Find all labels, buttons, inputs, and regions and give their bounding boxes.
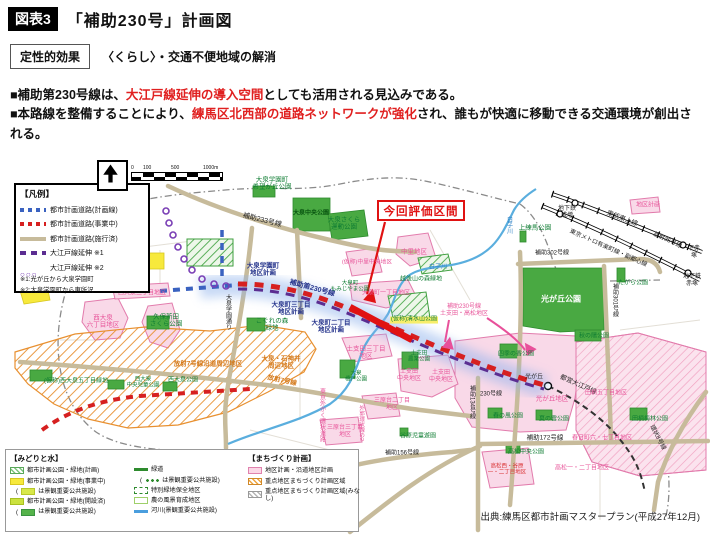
railways	[542, 194, 702, 280]
scale-tick: 0	[131, 165, 134, 171]
scale-tick: 500	[171, 165, 179, 171]
figure-page: 図表3 「補助230号」計画図 定性的効果 〈くらし〉・交通不便地域の解消 ■補…	[0, 0, 710, 536]
legend-paren: (	[140, 477, 142, 484]
legend-row: 大江戸線延伸 ※2	[20, 263, 144, 273]
sw-ygreen-swatch	[21, 488, 35, 495]
north-arrow-icon	[97, 160, 128, 191]
legend-paren: (	[16, 509, 18, 516]
scale-tick: 100	[143, 165, 151, 171]
bottom-legend-row: 重点地区まちづくり計画区域	[248, 478, 366, 485]
bottom-legend-row: 特別緑地保全地区	[134, 487, 242, 494]
green-water-legend-title: 【みどりと水】	[10, 453, 128, 464]
sw-lgreenbox-swatch	[134, 497, 148, 504]
bottom-legend-label: は景観重要公共施設)	[162, 477, 220, 484]
bottom-legend-row: (は景観重要公共施設)	[16, 508, 128, 515]
bottom-legend-label: は景観重要公共施設)	[38, 508, 96, 515]
evaluation-section-callout: 今回評価区間	[377, 200, 465, 221]
bottom-legend-label: 農の風景育成地区	[151, 497, 201, 504]
bottom-legend-label: 緑道	[151, 466, 163, 473]
sw-pink-swatch	[248, 467, 262, 474]
bottom-legend-label: 都市計画公園・緑地(開設済)	[27, 498, 105, 505]
bottom-legend-label: は景観重要公共施設)	[38, 488, 96, 495]
bottom-legend-label: 重点地区まちづくり計画区域	[265, 478, 345, 485]
tl-circles-swatch	[20, 264, 46, 272]
bottom-legend-row: 重点地区まちづくり計画区域(みなし)	[248, 488, 366, 502]
bottom-legend: 【みどりと水】 都市計画公園・緑地(計画)都市計画公園・緑地(事業中)(は景観重…	[5, 449, 359, 532]
bottom-legend-row: 都市計画公園・緑地(計画)	[10, 467, 128, 474]
priority-area-orange	[15, 325, 316, 428]
tl-blue-dash-swatch	[20, 208, 46, 212]
bottom-legend-label: 特別緑地保全地区	[151, 487, 201, 494]
map-legend: 【凡例】 都市計画道路(計画線)都市計画道路(事業中)都市計画道路(施行済)大江…	[14, 183, 150, 293]
machizukuri-legend-title: 【まちづくり計画】	[248, 453, 366, 464]
sw-dots-swatch	[145, 478, 159, 483]
bottom-legend-row: 緑道	[134, 466, 242, 473]
source-citation: 出典:練馬区都市計画マスタープラン(平成27年12月)	[480, 509, 700, 523]
sw-hatch-gray-swatch	[248, 491, 262, 498]
legend-row: 大江戸線延伸 ※1	[20, 248, 144, 258]
bottom-legend-label: 都市計画公園・緑地(計画)	[27, 467, 99, 474]
legend-row: 都市計画道路(計画線)	[20, 205, 144, 215]
legend-row: 都市計画道路(施行済)	[20, 234, 144, 244]
bottom-legend-row: 都市計画公園・緑地(開設済)	[10, 498, 128, 505]
tl-purple-dash-swatch	[20, 251, 46, 255]
legend-note: ※1:光が丘から大泉学園町	[20, 276, 144, 285]
sw-ygreen2-swatch	[10, 498, 24, 505]
sw-blueline-swatch	[134, 510, 148, 513]
bottom-legend-row: 都市計画公園・緑地(事業中)	[10, 478, 128, 485]
bottom-legend-label: 地区計画・沿道地区計画	[265, 467, 333, 474]
bottom-legend-label: 都市計画公園・緑地(事業中)	[27, 478, 105, 485]
legend-label: 都市計画道路(計画線)	[50, 205, 118, 215]
plan-map: 大泉学園町 希望が丘公園補助233号線大泉中央公園大泉さくら 運動公園上練馬公園…	[0, 0, 710, 536]
tl-red-dash-swatch	[20, 222, 46, 226]
bottom-legend-row: (は景観重要公共施設)	[16, 488, 128, 495]
legend-label: 都市計画道路(施行済)	[50, 234, 118, 244]
legend-row: 都市計画道路(事業中)	[20, 219, 144, 229]
sw-hatch-green-swatch	[10, 467, 24, 474]
sw-yellow-swatch	[10, 478, 24, 485]
bottom-legend-row: (は景観重要公共施設)	[140, 477, 242, 484]
legend-paren: (	[16, 488, 18, 495]
scale-bar: 01005001000m	[131, 165, 223, 181]
bottom-legend-row: 河川(景観重要公共施設)	[134, 507, 242, 514]
tl-tan-swatch	[20, 237, 46, 241]
sw-greendash-swatch	[134, 487, 148, 494]
sw-hatch-orange-swatch	[248, 478, 262, 485]
legend-note: ※2:大泉学園町から東所沢	[20, 287, 144, 296]
sw-greenline-swatch	[134, 468, 148, 471]
bottom-legend-label: 河川(景観重要公共施設)	[151, 507, 217, 514]
bottom-legend-row: 農の風景育成地区	[134, 497, 242, 504]
legend-label: 都市計画道路(事業中)	[50, 219, 118, 229]
sw-green-swatch	[21, 509, 35, 516]
legend-label: 大江戸線延伸 ※2	[50, 263, 104, 273]
bottom-legend-row: 地区計画・沿道地区計画	[248, 467, 366, 474]
scale-tick: 1000m	[203, 165, 218, 171]
legend-label: 大江戸線延伸 ※1	[50, 248, 104, 258]
bottom-legend-label: 重点地区まちづくり計画区域(みなし)	[265, 488, 366, 502]
